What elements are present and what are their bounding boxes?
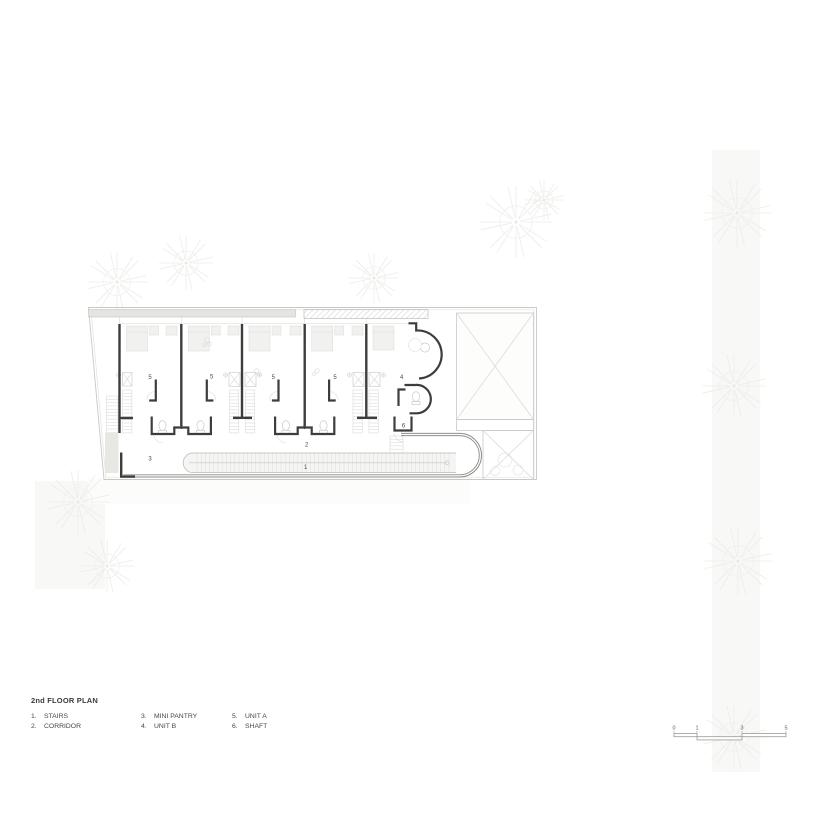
scale-bar-segments: [674, 734, 786, 740]
legend: 2nd FLOOR PLAN 1.STAIRS 2.CORRIDOR 3.MIN…: [31, 696, 267, 731]
floor-plan: 55554666231: [85, 300, 545, 505]
room-label-5: 5: [272, 375, 276, 381]
scale-label-0: 0: [672, 726, 675, 732]
room-label-3: 3: [148, 457, 152, 463]
room-label-5: 5: [333, 375, 337, 381]
tree-icon: [524, 180, 564, 220]
fixtures: [159, 339, 430, 434]
legend-item-unit-a: 5.UNIT A: [232, 712, 267, 722]
legend-item-corridor: 2.CORRIDOR: [31, 722, 141, 732]
legend-item-mini-pantry: 3.MINI PANTRY: [141, 712, 232, 722]
shaft-boxes: [123, 373, 381, 387]
furniture: [127, 326, 395, 351]
room-label-4: 4: [400, 375, 404, 381]
shaft-walls: [152, 417, 412, 435]
legend-item-unit-b: 4.UNIT B: [141, 722, 232, 732]
legend-column-1: 1.STAIRS 2.CORRIDOR: [31, 712, 141, 731]
curved-walls: [405, 323, 442, 413]
tree-icon: [80, 539, 134, 593]
tree-icon: [702, 354, 766, 418]
scale-label-3: 3: [740, 726, 743, 732]
room-label-5: 5: [210, 375, 214, 381]
room-label-5: 5: [148, 375, 152, 381]
scale-bar: 0135: [668, 718, 796, 746]
room-label-6: 6: [402, 424, 406, 430]
legend-column-2: 3.MINI PANTRY 4.UNIT B: [141, 712, 232, 731]
architectural-sheet: { "title_block": { "title": "2nd FLOOR P…: [0, 0, 818, 818]
room-label-2: 2: [305, 443, 309, 449]
scale-label-5: 5: [784, 726, 787, 732]
tree-icon: [704, 527, 772, 595]
legend-item-stairs: 1.STAIRS: [31, 712, 141, 722]
top-bands: [89, 310, 429, 319]
scale-bar-labels: 0135: [672, 726, 787, 732]
tree-icon: [703, 179, 771, 247]
tree-icon: [349, 253, 399, 303]
legend-item-shaft: 6.SHAFT: [232, 722, 267, 732]
tree-icon: [159, 236, 213, 290]
legend-column-3: 5.UNIT A 6.SHAFT: [232, 712, 267, 731]
scale-label-1: 1: [695, 726, 698, 732]
stairs-strip: [183, 453, 456, 473]
void-areas: [457, 313, 534, 480]
legend-columns: 1.STAIRS 2.CORRIDOR 3.MINI PANTRY 4.UNIT…: [31, 712, 267, 731]
site-strip-right: [712, 150, 760, 772]
plan-title: 2nd FLOOR PLAN: [31, 696, 267, 705]
left-gray-patch: [105, 433, 119, 473]
